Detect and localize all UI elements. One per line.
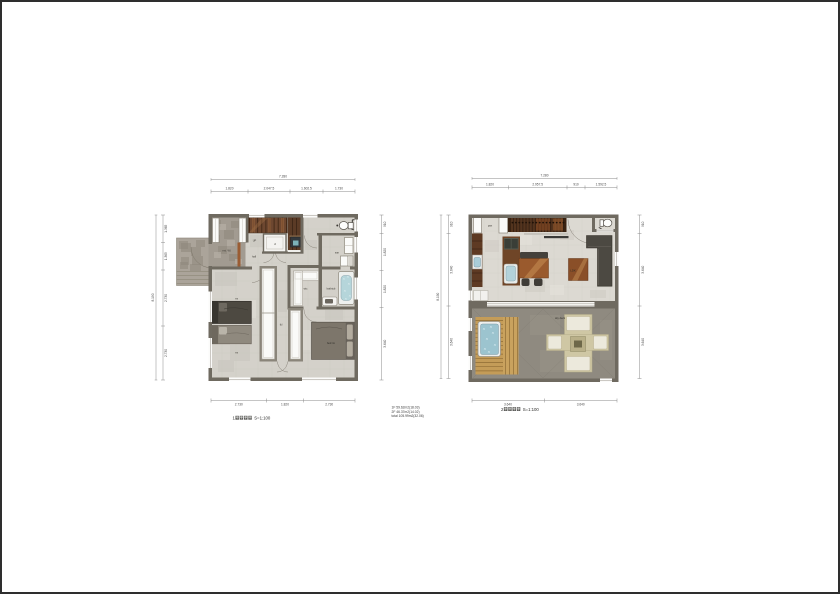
svg-text:1.365: 1.365	[164, 252, 168, 260]
svg-text:3.640: 3.640	[504, 403, 512, 407]
svg-text:1.820: 1.820	[486, 183, 494, 187]
svg-text:3.640: 3.640	[641, 265, 645, 273]
svg-text:S=1:100: S=1:100	[523, 407, 540, 412]
svg-text:8.190: 8.190	[436, 292, 440, 300]
svg-text:1.820: 1.820	[226, 187, 234, 191]
svg-text:ent. W.I: ent. W.I	[222, 248, 231, 252]
svg-text:910: 910	[573, 183, 579, 187]
svg-text:sky deck: sky deck	[555, 316, 566, 320]
svg-text:LDK: LDK	[570, 268, 576, 272]
svg-text:910: 910	[449, 221, 453, 227]
svg-text:2.047.5: 2.047.5	[264, 187, 275, 191]
svg-text:7.280: 7.280	[541, 174, 549, 178]
svg-text:fcl: fcl	[280, 322, 283, 326]
svg-text:S=1:100: S=1:100	[254, 416, 271, 421]
svg-text:2.957.5: 2.957.5	[532, 183, 543, 187]
svg-text:1.820: 1.820	[383, 285, 387, 293]
svg-text:3.640: 3.640	[449, 265, 453, 273]
svg-text:1.365: 1.365	[164, 224, 168, 232]
svg-text:8.190: 8.190	[151, 293, 155, 301]
svg-text:rm: rm	[235, 351, 238, 355]
svg-text:1.602.5: 1.602.5	[301, 187, 312, 191]
svg-text:2.730: 2.730	[235, 403, 243, 407]
svg-text:rm: rm	[235, 296, 238, 300]
svg-text:3.640: 3.640	[577, 403, 585, 407]
svg-text:san: san	[335, 251, 340, 254]
svg-text:3.640: 3.640	[383, 339, 387, 347]
svg-text:1.820: 1.820	[383, 248, 387, 256]
svg-text:2.730: 2.730	[164, 294, 168, 302]
svg-text:1.592.5: 1.592.5	[596, 183, 607, 187]
svg-text:910: 910	[641, 221, 645, 227]
svg-text:total 105.99m2(32.06): total 105.99m2(32.06)	[392, 414, 424, 418]
svg-text:bed rm: bed rm	[327, 341, 335, 345]
svg-text:910: 910	[383, 221, 387, 227]
svg-text:bathtub: bathtub	[327, 287, 336, 291]
svg-text:2.730: 2.730	[164, 349, 168, 357]
svg-text:pan: pan	[488, 225, 493, 228]
svg-text:7.280: 7.280	[279, 175, 287, 179]
svg-text:hall: hall	[252, 254, 256, 258]
svg-text:2.730: 2.730	[325, 403, 333, 407]
svg-text:1.730: 1.730	[335, 187, 343, 191]
svg-text:3.640: 3.640	[641, 338, 645, 346]
svg-text:1.820: 1.820	[281, 403, 289, 407]
svg-text:3.640: 3.640	[449, 338, 453, 346]
svg-text:UP: UP	[253, 239, 257, 243]
